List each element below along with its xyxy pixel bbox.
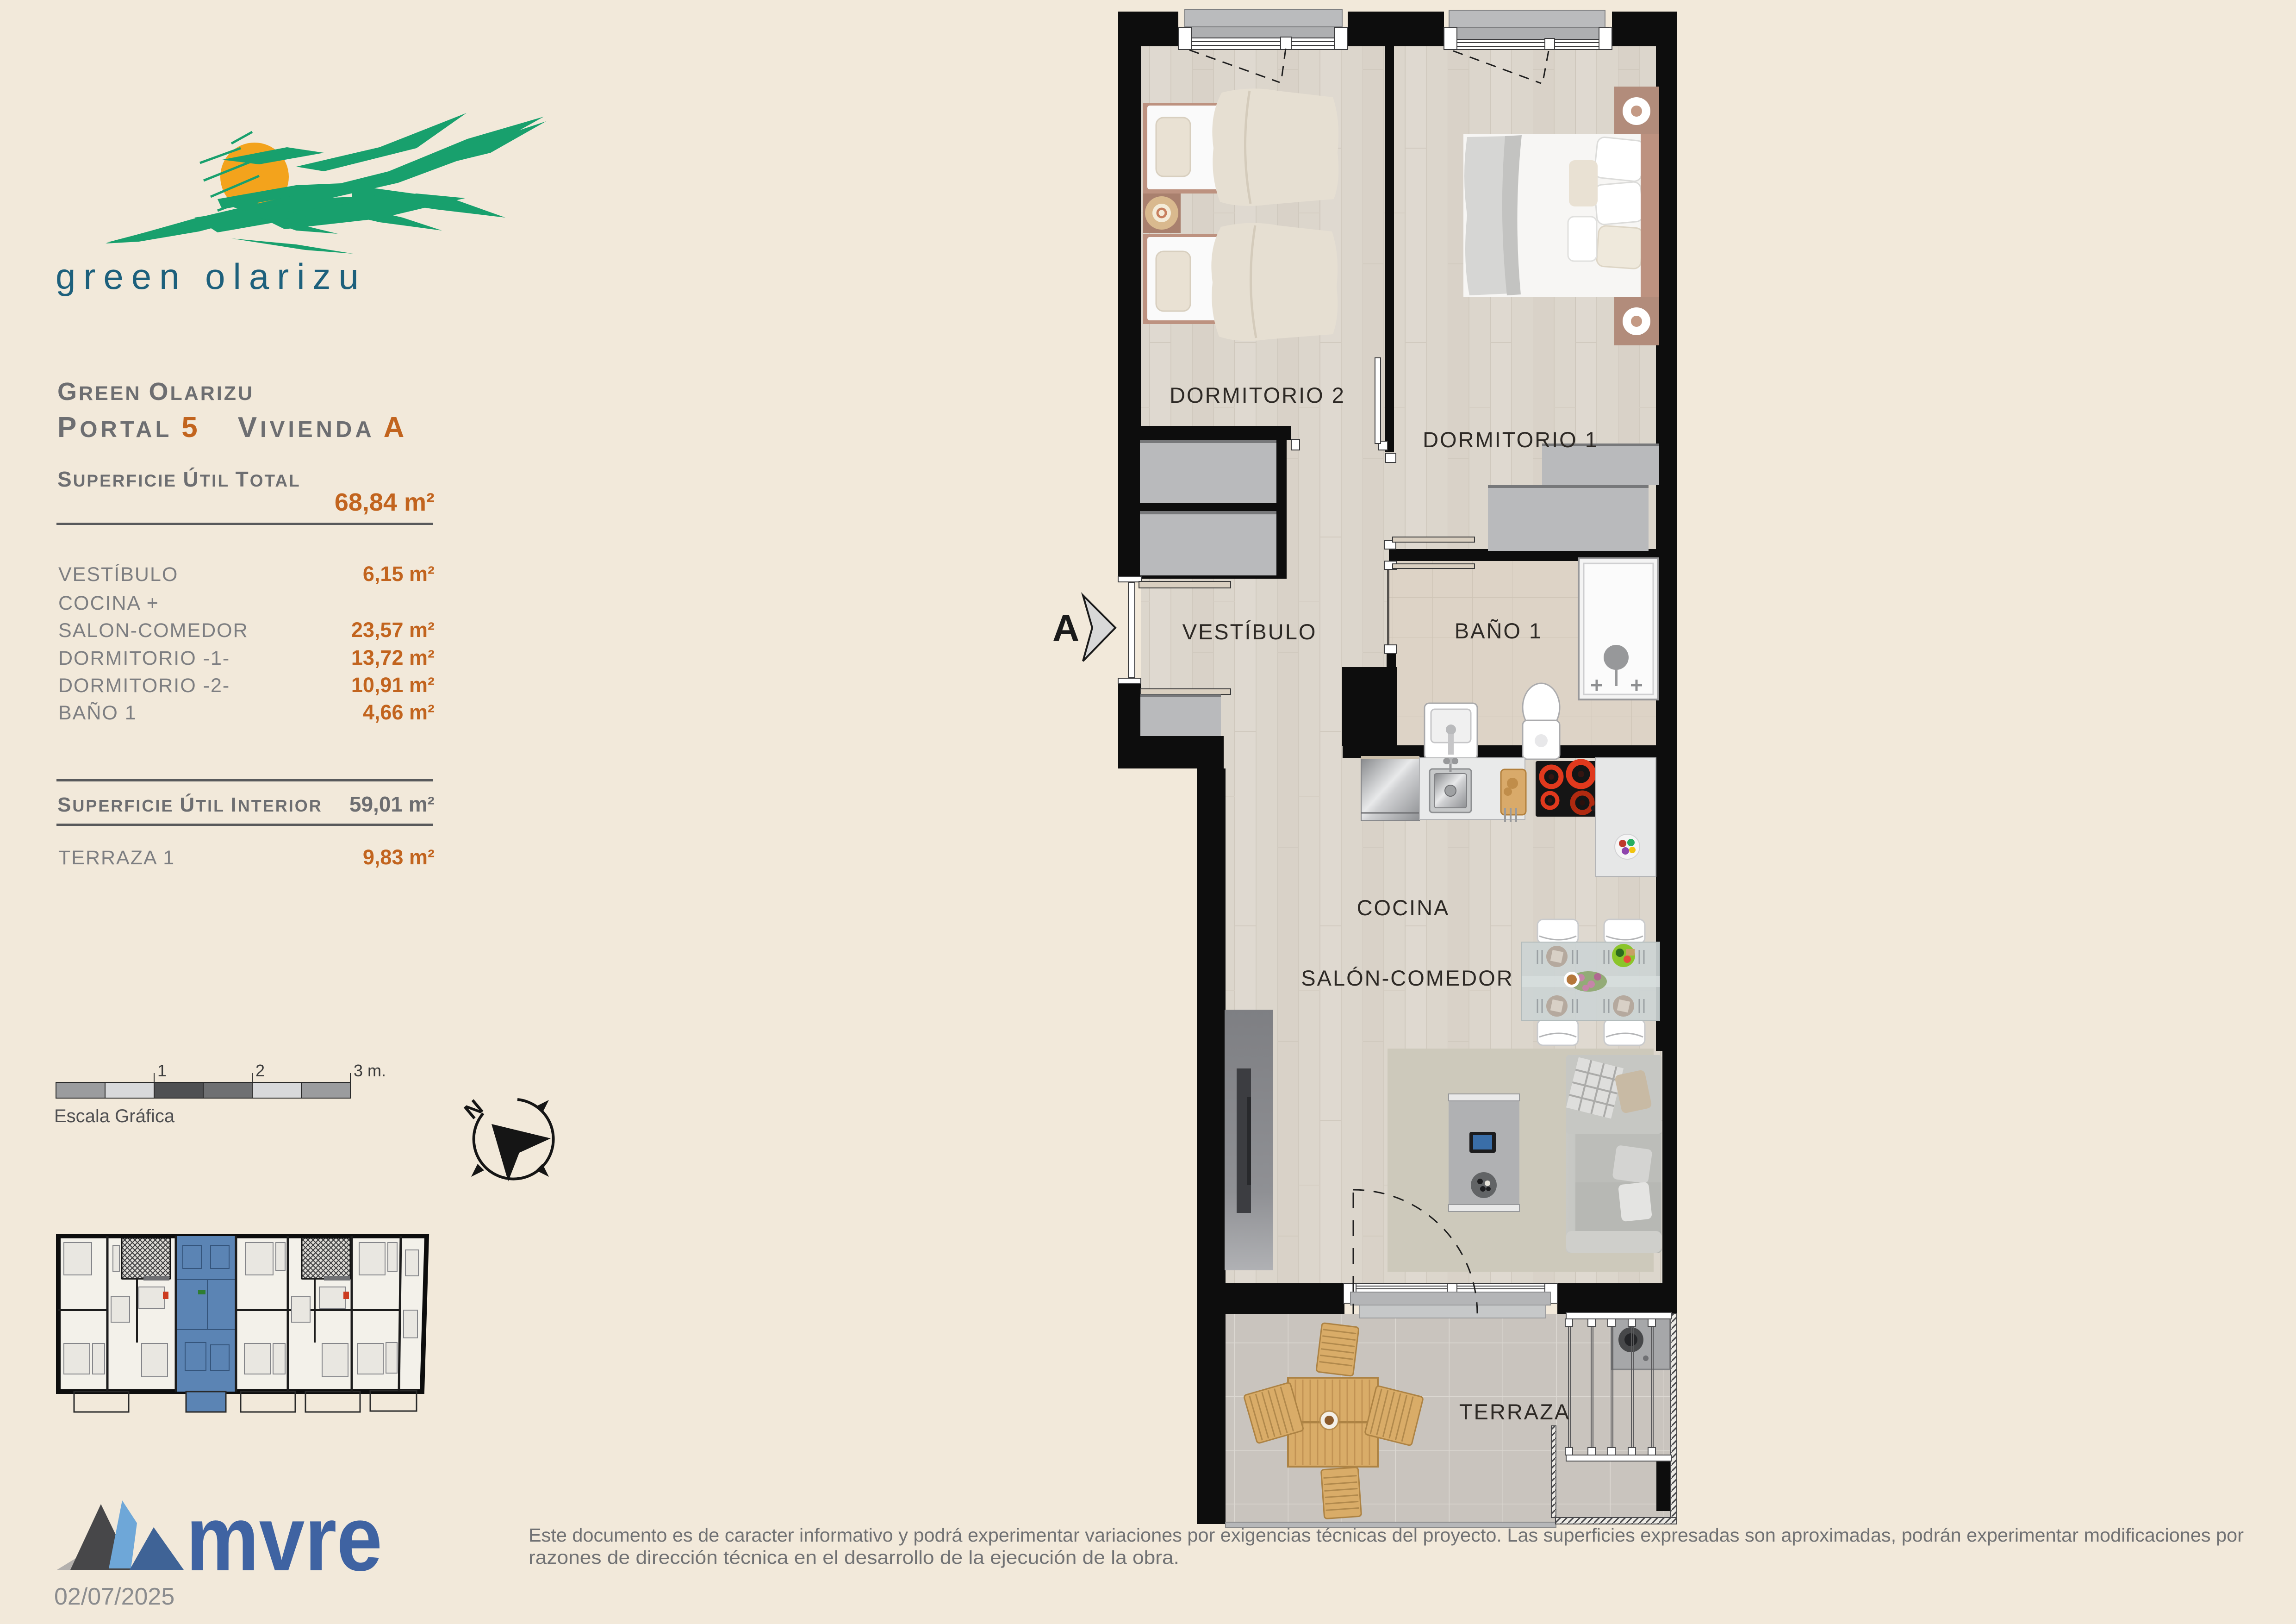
svg-text:9,83 m²: 9,83 m² [363, 845, 435, 869]
svg-text:6,15 m²: 6,15 m² [363, 562, 435, 586]
svg-text:23,57 m²: 23,57 m² [351, 618, 435, 642]
svg-text:4,66 m²: 4,66 m² [363, 700, 435, 724]
svg-text:SALON-COMEDOR: SALON-COMEDOR [58, 619, 249, 642]
svg-text:1: 1 [157, 1061, 167, 1080]
svg-text:GREEN OLARIZU: GREEN OLARIZU [57, 378, 254, 406]
svg-text:13,72 m²: 13,72 m² [351, 646, 435, 669]
svg-text:N: N [460, 1095, 488, 1124]
svg-text:VESTÍBULO: VESTÍBULO [58, 563, 178, 586]
svg-text:68,84 m²: 68,84 m² [335, 488, 435, 516]
svg-text:10,91 m²: 10,91 m² [351, 673, 435, 697]
svg-text:BAÑO 1: BAÑO 1 [1455, 618, 1543, 643]
svg-text:TERRAZA 1: TERRAZA 1 [58, 847, 175, 869]
svg-text:2: 2 [255, 1061, 265, 1080]
svg-text:SALÓN-COMEDOR: SALÓN-COMEDOR [1301, 966, 1513, 990]
svg-text:BAÑO 1: BAÑO 1 [58, 702, 137, 724]
svg-text:COCINA: COCINA [1357, 895, 1450, 920]
svg-text:green olarizu: green olarizu [56, 256, 367, 297]
svg-text:Escala Gráfica: Escala Gráfica [54, 1106, 175, 1126]
svg-text:DORMITORIO -2-: DORMITORIO -2- [58, 675, 230, 697]
svg-text:A: A [1052, 607, 1079, 649]
svg-text:PORTAL 5VIVIENDA A: PORTAL 5VIVIENDA A [57, 412, 407, 443]
svg-text:VESTÍBULO: VESTÍBULO [1182, 619, 1317, 644]
svg-text:59,01 m²: 59,01 m² [349, 792, 435, 816]
svg-text:COCINA +: COCINA + [58, 592, 159, 614]
svg-text:02/07/2025: 02/07/2025 [54, 1583, 174, 1610]
svg-text:TERRAZA: TERRAZA [1459, 1399, 1570, 1424]
svg-text:DORMITORIO -1-: DORMITORIO -1- [58, 647, 230, 669]
svg-text:mvre: mvre [186, 1487, 382, 1590]
svg-text:SUPERFICIE ÚTIL INTERIOR: SUPERFICIE ÚTIL INTERIOR [57, 793, 323, 816]
svg-text:3 m.: 3 m. [354, 1061, 386, 1080]
svg-text:DORMITORIO 1: DORMITORIO 1 [1423, 427, 1599, 452]
svg-text:DORMITORIO 2: DORMITORIO 2 [1170, 383, 1345, 407]
svg-text:SUPERFICIE ÚTIL TOTAL: SUPERFICIE ÚTIL TOTAL [57, 467, 301, 491]
svg-text:razones de dirección técnica e: razones de dirección técnica en el desar… [529, 1547, 1179, 1568]
